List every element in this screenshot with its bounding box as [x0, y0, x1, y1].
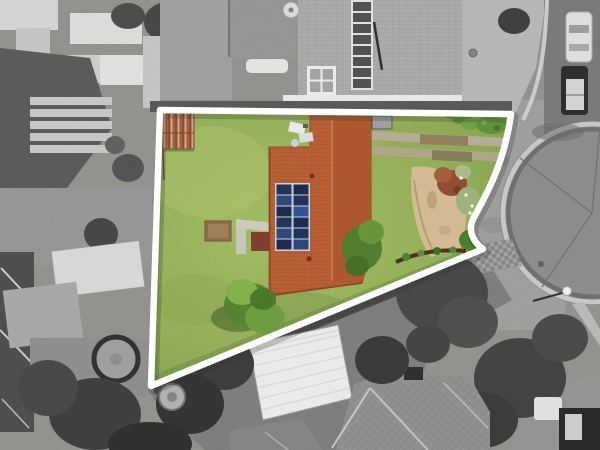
photo-grain [0, 0, 600, 450]
aerial-property-photo [0, 0, 600, 450]
boundary-overlay-layer [0, 0, 600, 450]
aerial-photo-canvas [0, 0, 600, 450]
